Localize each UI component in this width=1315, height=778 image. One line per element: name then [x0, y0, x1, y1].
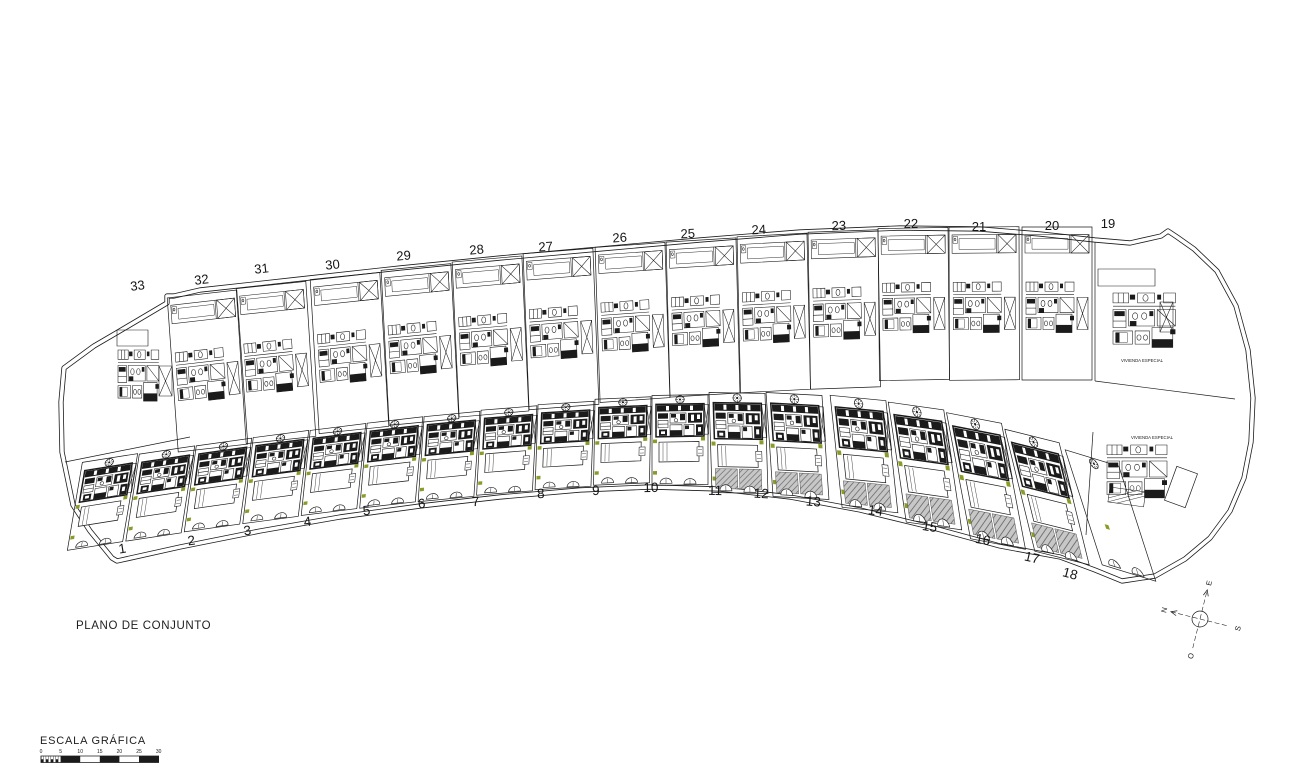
garage-strip	[455, 264, 520, 288]
plot-20	[1022, 227, 1092, 380]
plot-25	[666, 238, 740, 397]
x-crossed-strip	[794, 305, 806, 338]
bottom-house-plan	[771, 403, 821, 443]
pool	[905, 465, 953, 498]
plot-27	[523, 248, 599, 409]
garage-strip	[171, 298, 236, 324]
tree-icon	[853, 398, 863, 409]
lot-12	[709, 393, 768, 494]
pool	[777, 447, 822, 472]
plot-number-29: 29	[396, 247, 412, 263]
pool	[485, 450, 530, 472]
top-house-plan	[953, 282, 1001, 333]
scale-tick-25: 25	[136, 749, 142, 755]
pool	[843, 454, 889, 483]
x-crossed-strip	[227, 361, 240, 395]
scale-tick-10: 10	[77, 749, 83, 755]
top-house-plan	[459, 313, 509, 368]
scale-bar-label: ESCALA GRÁFICA	[40, 735, 146, 747]
x-crossed-strip	[159, 366, 172, 396]
tree-icon	[447, 414, 457, 423]
top-house-plan	[388, 321, 438, 377]
lot-11	[652, 395, 708, 486]
plot-number-26: 26	[612, 230, 627, 246]
compass-s-label: S	[1233, 625, 1243, 632]
garage-strip	[314, 280, 379, 305]
top-house-plan	[175, 348, 226, 404]
scale-tick-5: 5	[59, 749, 62, 755]
lot-8	[477, 406, 538, 495]
lot-15	[888, 402, 962, 530]
garage-strip	[598, 251, 662, 274]
tree-icon	[789, 394, 799, 404]
bottom-house-plan	[598, 406, 646, 439]
plot-29	[381, 264, 459, 426]
bottom-house-plan	[541, 410, 590, 444]
compass-o-label: O	[1186, 652, 1196, 660]
plot-31	[236, 281, 316, 443]
x-crossed-strip	[723, 309, 735, 342]
pool	[136, 492, 182, 518]
plot-26	[595, 243, 670, 403]
lot-number-8: 8	[537, 486, 545, 501]
top-house-plan	[1107, 445, 1167, 498]
top-house-plan	[529, 306, 579, 361]
top-house-plan	[883, 282, 931, 333]
bottom-house-plan	[953, 426, 1009, 481]
site-plan-drawing: VIVIENDA ESPECIALVIVIENDA ESPECIAL333231…	[0, 0, 1315, 778]
garage-strip	[740, 241, 804, 263]
plot-23	[808, 230, 880, 389]
garage-strip	[811, 238, 875, 259]
special-dwelling-label: VIVIENDA ESPECIAL	[1131, 435, 1174, 440]
pool	[1165, 466, 1198, 507]
pool	[194, 484, 240, 509]
compass-rose: NESO	[1150, 571, 1252, 670]
lot-number-1: 1	[117, 541, 127, 557]
lot-1	[67, 454, 138, 551]
lot-7	[418, 411, 480, 501]
top-house-plan	[118, 350, 159, 401]
plot-number-22: 22	[904, 216, 919, 231]
plot-number-27: 27	[538, 239, 553, 255]
lot-13	[766, 393, 829, 500]
tree-icon	[911, 406, 922, 419]
garage-strip	[952, 234, 1016, 253]
garage-strip	[881, 235, 945, 254]
plot-30	[310, 272, 389, 433]
scale-tick-0: 0	[40, 749, 43, 755]
top-house-plan	[742, 290, 791, 344]
scale-tick-15: 15	[97, 749, 103, 755]
bottom-house-plan	[656, 404, 704, 437]
site-plan-page: VIVIENDA ESPECIALVIVIENDA ESPECIAL333231…	[0, 0, 1315, 778]
compass-e-label: E	[1204, 580, 1214, 587]
lot-number-6: 6	[417, 496, 426, 512]
bottom-house-plan	[425, 420, 475, 455]
pool	[252, 476, 298, 501]
pool	[718, 445, 763, 468]
pool	[601, 442, 645, 463]
lot-number-2: 2	[187, 533, 197, 549]
garage-strip	[526, 256, 591, 280]
lot-17	[1005, 429, 1090, 565]
x-crossed-strip	[934, 297, 945, 329]
x-crossed-strip	[510, 328, 522, 362]
plot-number-32: 32	[193, 271, 209, 288]
lot-4	[243, 430, 310, 523]
garage-strip	[240, 289, 305, 314]
lot-16	[947, 413, 1026, 550]
lot-number-13: 13	[805, 493, 821, 509]
scale-tick-20: 20	[117, 749, 123, 755]
plot-number-21: 21	[972, 219, 986, 234]
x-crossed-strip	[1077, 297, 1088, 329]
special-dwelling-label: VIVIENDA ESPECIAL	[1121, 358, 1164, 363]
plot-22	[878, 227, 949, 380]
special-dwelling-area: VIVIENDA ESPECIAL	[1086, 432, 1197, 535]
bottom-house-plan	[835, 407, 887, 452]
x-crossed-strip	[652, 314, 664, 347]
top-house-plan	[601, 300, 651, 354]
plot-number-28: 28	[469, 241, 485, 257]
lot-number-9: 9	[592, 483, 600, 498]
bottom-house-plan	[310, 433, 361, 469]
plot-24	[737, 233, 810, 393]
plot-number-24: 24	[751, 222, 766, 238]
lot-6	[360, 417, 424, 508]
top-house-plan	[1113, 293, 1175, 347]
scale-tick-30: 30	[156, 749, 162, 755]
top-house-plan	[317, 330, 368, 386]
drawing-title: PLANO DE CONJUNTO	[76, 620, 211, 632]
lot-number-16: 16	[974, 531, 992, 549]
pool	[310, 468, 356, 492]
lot-3	[184, 438, 252, 532]
x-crossed-strip	[1004, 297, 1015, 329]
top-house-plan	[813, 287, 862, 340]
top-plots	[167, 227, 1092, 452]
x-crossed-strip	[864, 302, 876, 335]
plot-number-23: 23	[831, 218, 846, 233]
bottom-house-plan	[195, 447, 247, 485]
top-house-plan	[1026, 282, 1074, 332]
lot-number-3: 3	[243, 523, 253, 539]
pool	[659, 441, 703, 462]
plot-number-25: 25	[680, 226, 695, 242]
x-crossed-strip	[295, 353, 308, 387]
bottom-house-plan	[252, 439, 303, 476]
garage-strip	[385, 272, 450, 297]
lot-number-17: 17	[1023, 549, 1041, 567]
top-house-plan	[244, 339, 295, 395]
plot-28	[452, 256, 529, 417]
x-crossed-strip	[369, 344, 382, 377]
pool	[543, 446, 588, 467]
bottom-house-plan	[894, 415, 948, 465]
plot-number-30: 30	[325, 256, 341, 272]
bottom-house-plan	[368, 426, 418, 462]
plot-32	[167, 290, 248, 452]
x-crossed-strip	[581, 320, 593, 354]
lot-number-12: 12	[753, 486, 769, 502]
x-crossed-strip	[440, 335, 453, 369]
tree-icon	[618, 398, 628, 406]
plot-number-31: 31	[254, 260, 270, 276]
lot-5	[301, 424, 366, 516]
lot-number-18: 18	[1061, 564, 1079, 582]
pool	[78, 500, 125, 526]
compass-n-label: N	[1159, 606, 1169, 613]
lot-number-11: 11	[708, 483, 722, 498]
plot-number-19: 19	[1101, 216, 1115, 231]
tree-icon	[732, 393, 742, 403]
lot-14	[830, 395, 898, 512]
pool	[427, 456, 472, 479]
tree-icon	[1088, 457, 1100, 471]
lot-9	[535, 401, 594, 489]
lot-number-15: 15	[921, 518, 938, 535]
lot-number-5: 5	[362, 503, 371, 519]
lot-number-14: 14	[867, 502, 884, 519]
plot-21	[949, 227, 1019, 381]
lot-10	[594, 397, 652, 485]
scale-bar: 051015202530	[40, 749, 162, 763]
lot-number-7: 7	[471, 494, 480, 509]
top-house-plan	[671, 295, 720, 349]
bottom-house-plan	[1012, 442, 1069, 498]
garage-strip	[669, 246, 733, 269]
x-crossed-strip	[819, 407, 826, 442]
pool	[369, 462, 414, 486]
lot-number-4: 4	[303, 514, 313, 530]
plot-number-20: 20	[1045, 218, 1059, 233]
lot-number-10: 10	[643, 480, 658, 495]
bottom-house-plan	[483, 415, 532, 449]
plot-number-33: 33	[129, 277, 145, 294]
bottom-house-plan	[713, 403, 762, 440]
tree-icon	[561, 403, 571, 412]
